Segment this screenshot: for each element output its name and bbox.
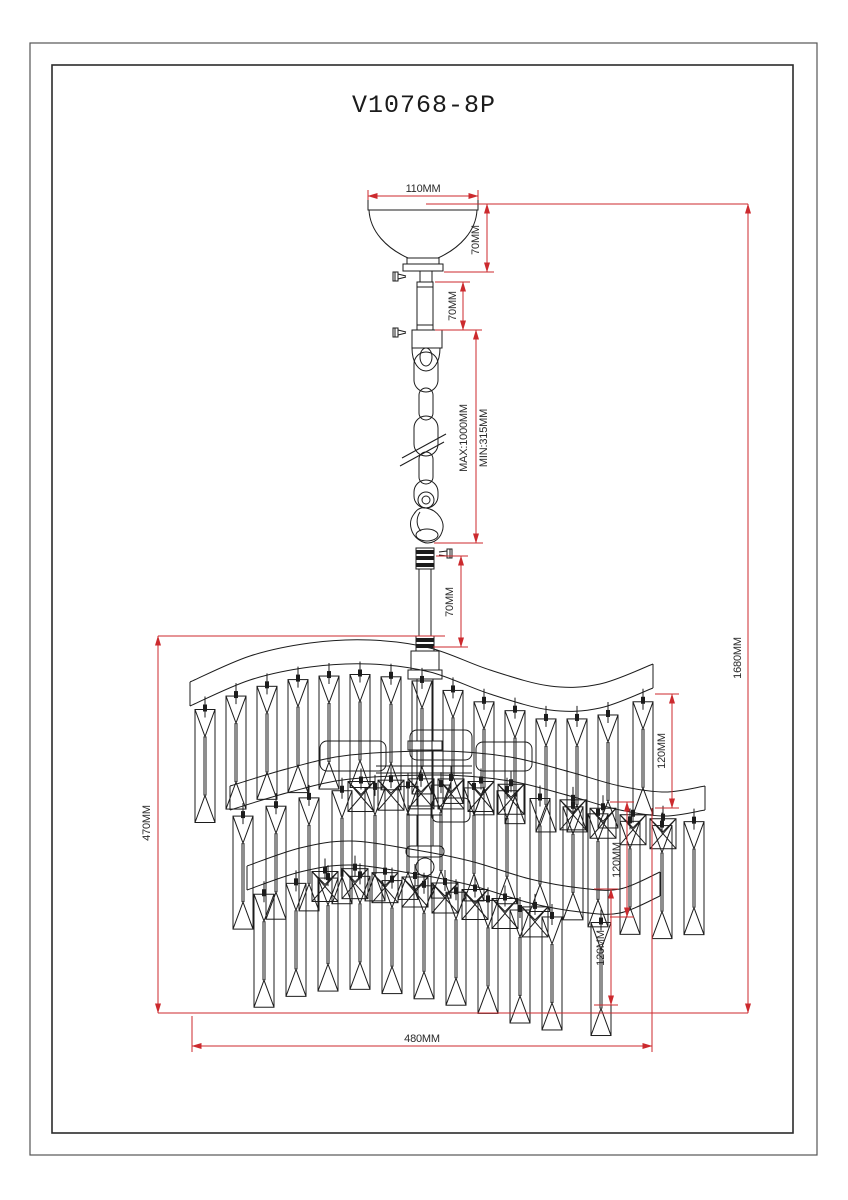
set-screw-icon xyxy=(393,272,406,281)
crystal-prism xyxy=(233,803,253,929)
prism-bead xyxy=(550,912,554,919)
dim-label: 480MM xyxy=(404,1033,440,1045)
dimension-tier3-crystal: 120MM xyxy=(594,889,618,1005)
crystal-prism xyxy=(350,863,370,989)
crystal-prism xyxy=(226,683,246,809)
prism-bead xyxy=(241,811,245,818)
prism-bead xyxy=(641,697,645,704)
dimension-lower-stem: 70MM xyxy=(433,556,468,647)
prism-bead xyxy=(660,821,664,828)
prism-bead xyxy=(606,710,610,717)
crystal-prism xyxy=(266,793,286,919)
crystal-prism xyxy=(620,808,640,934)
prism-bead xyxy=(454,887,458,894)
dimension-canopy-width: 110MM xyxy=(368,183,478,200)
prism-bead xyxy=(419,774,423,781)
threaded-coupler xyxy=(416,548,434,569)
lower-stem xyxy=(416,569,434,651)
crystal-prism-short xyxy=(620,802,646,845)
prism-bead xyxy=(383,868,387,875)
dim-label: MIN:315MM xyxy=(478,409,490,467)
prism-bead xyxy=(373,783,377,790)
chain-assembly xyxy=(400,330,446,508)
prism-bead xyxy=(486,895,490,902)
prism-bead xyxy=(420,676,424,683)
prism-bead xyxy=(323,867,327,874)
break-mark xyxy=(402,434,446,458)
prism-bead xyxy=(296,675,300,682)
prism-bead xyxy=(307,793,311,800)
prism-bead xyxy=(692,817,696,824)
prism-bead xyxy=(439,780,443,787)
prism-bead xyxy=(479,777,483,784)
prism-bead xyxy=(327,671,331,678)
dim-label: 470MM xyxy=(141,805,153,841)
prism-bead xyxy=(406,781,410,788)
dim-label: 70MM xyxy=(470,225,482,255)
crystal-prism xyxy=(286,870,306,996)
prism-bead xyxy=(274,801,278,808)
drawing-title: V10768-8P xyxy=(352,91,496,120)
prism-bead xyxy=(505,786,509,793)
prism-bead xyxy=(596,809,600,816)
crystal-prism xyxy=(591,910,611,1036)
prism-bead xyxy=(265,681,269,688)
prism-bead xyxy=(575,714,579,721)
prism-bead xyxy=(533,902,537,909)
dim-label: 120MM xyxy=(595,930,607,966)
upper-stem xyxy=(417,282,433,330)
prism-bead xyxy=(599,918,603,925)
crystal-prism-short xyxy=(522,894,548,937)
dim-label: MAX:1000MM xyxy=(458,404,470,472)
prism-bead xyxy=(518,905,522,912)
crystal-prism xyxy=(288,667,308,793)
crystal-prism xyxy=(350,662,370,788)
break-mark xyxy=(400,442,444,466)
prism-bead xyxy=(422,881,426,888)
prism-bead xyxy=(449,774,453,781)
crystal-prism xyxy=(684,809,704,935)
crystal-prism xyxy=(542,904,562,1030)
prism-bead xyxy=(262,889,266,896)
dim-label: 70MM xyxy=(444,587,456,617)
prism-bead xyxy=(353,864,357,871)
prism-bead xyxy=(451,685,455,692)
prism-bead xyxy=(472,783,476,790)
dim-label: 110MM xyxy=(406,183,441,195)
prism-bead xyxy=(628,816,632,823)
prism-bead xyxy=(503,894,507,901)
hook xyxy=(411,492,443,543)
prism-bead xyxy=(234,691,238,698)
crystal-prism xyxy=(510,897,530,1023)
prism-bead xyxy=(389,775,393,782)
prism-bead xyxy=(631,810,635,817)
crystal-prism xyxy=(652,813,672,939)
crystal-prism xyxy=(254,881,274,1007)
dimension-upper-stem: 70MM xyxy=(435,282,482,330)
prism-bead xyxy=(389,672,393,679)
prism-bead xyxy=(601,803,605,810)
prism-bead xyxy=(443,878,447,885)
prism-bead xyxy=(294,878,298,885)
dim-label: 1680MM xyxy=(732,637,744,679)
prism-bead xyxy=(509,779,513,786)
crystal-prism xyxy=(633,689,653,815)
drawing-page: V10768-8P xyxy=(0,0,848,1200)
crystal-prism xyxy=(443,677,463,803)
crystal-prism xyxy=(567,706,587,832)
crystal-tiers xyxy=(190,640,705,1036)
dim-label: 70MM xyxy=(447,291,459,321)
dim-label: 120MM xyxy=(611,842,623,878)
prism-bead xyxy=(544,714,548,721)
prism-bead xyxy=(390,876,394,883)
crystal-prism xyxy=(318,865,338,991)
prism-bead xyxy=(359,777,363,784)
crystal-prism xyxy=(478,887,498,1013)
prism-bead xyxy=(482,697,486,704)
dim-label: 120MM xyxy=(656,733,668,769)
crystal-prism-short xyxy=(312,859,338,902)
prism-bead xyxy=(571,802,575,809)
prism-bead xyxy=(413,872,417,879)
prism-bead xyxy=(513,706,517,713)
crystal-prism xyxy=(257,673,277,799)
technical-drawing: V10768-8P xyxy=(0,0,848,1200)
prism-bead xyxy=(358,871,362,878)
crystal-prism xyxy=(195,697,215,823)
crystal-prism xyxy=(319,663,339,789)
prism-bead xyxy=(473,885,477,892)
prism-bead xyxy=(538,794,542,801)
inner-border xyxy=(52,65,793,1133)
set-screw-icon xyxy=(439,549,452,558)
tier-2 xyxy=(230,751,705,939)
set-screw-icon xyxy=(393,328,406,337)
crystal-prism xyxy=(536,706,556,832)
prism-bead xyxy=(203,705,207,712)
prism-bead xyxy=(326,873,330,880)
dimension-canopy-height: 70MM xyxy=(444,204,494,272)
ceiling-canopy xyxy=(368,196,478,282)
crystal-prism xyxy=(505,698,525,824)
prism-bead xyxy=(358,670,362,677)
prism-bead xyxy=(340,786,344,793)
